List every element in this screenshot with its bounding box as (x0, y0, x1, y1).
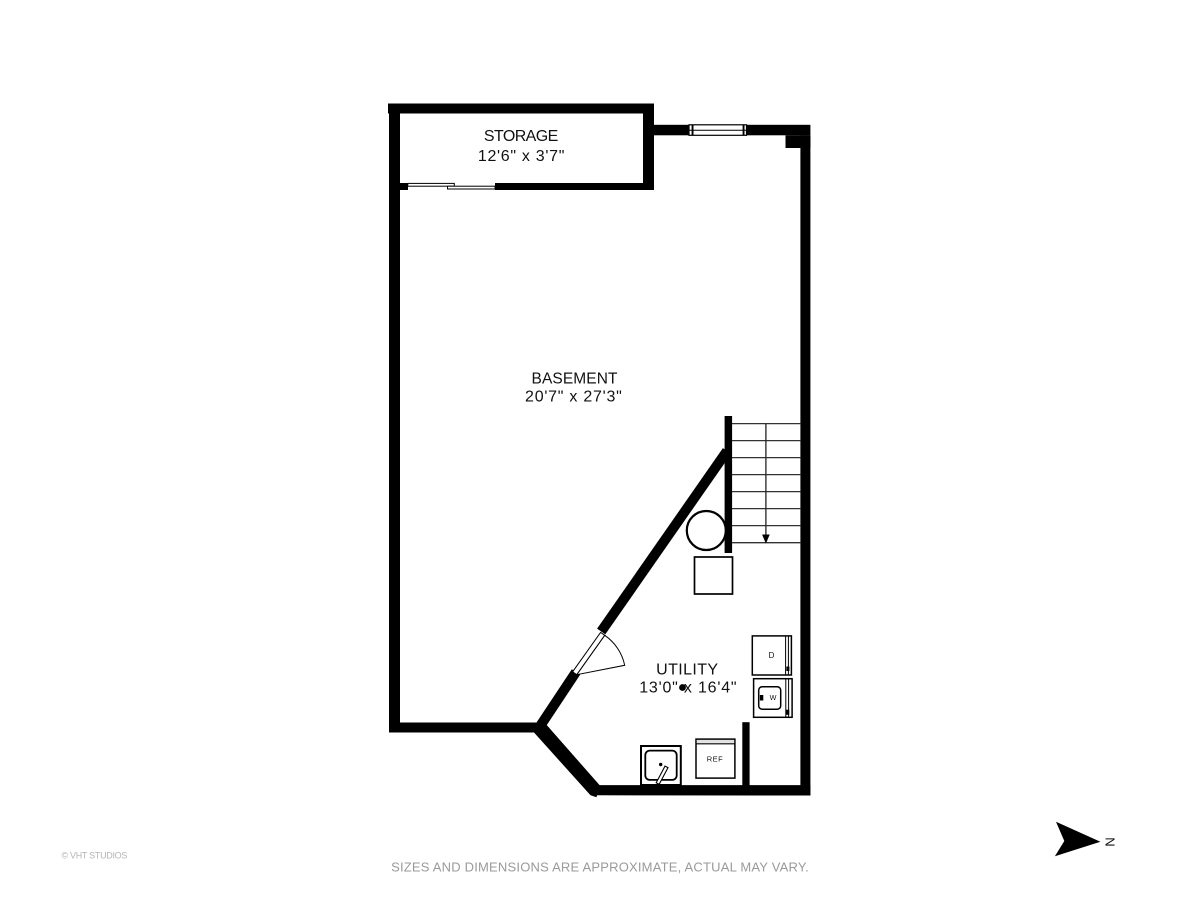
svg-text:STORAGE: STORAGE (484, 128, 558, 145)
svg-text:REF: REF (707, 755, 724, 764)
svg-text:D: D (769, 651, 775, 660)
svg-text:N: N (1103, 837, 1118, 846)
svg-text:BASEMENT: BASEMENT (532, 370, 618, 387)
svg-text:W: W (770, 693, 777, 702)
svg-text:UTILITY: UTILITY (656, 662, 718, 679)
svg-text:SIZES AND DIMENSIONS ARE APPRO: SIZES AND DIMENSIONS ARE APPROXIMATE, AC… (391, 860, 809, 875)
svg-text:13'0" x 16'4": 13'0" x 16'4" (639, 680, 737, 697)
svg-text:20'7" x 27'3": 20'7" x 27'3" (525, 389, 623, 406)
svg-text:© VHT STUDIOS: © VHT STUDIOS (62, 851, 128, 861)
svg-text:12'6" x 3'7": 12'6" x 3'7" (478, 148, 565, 165)
